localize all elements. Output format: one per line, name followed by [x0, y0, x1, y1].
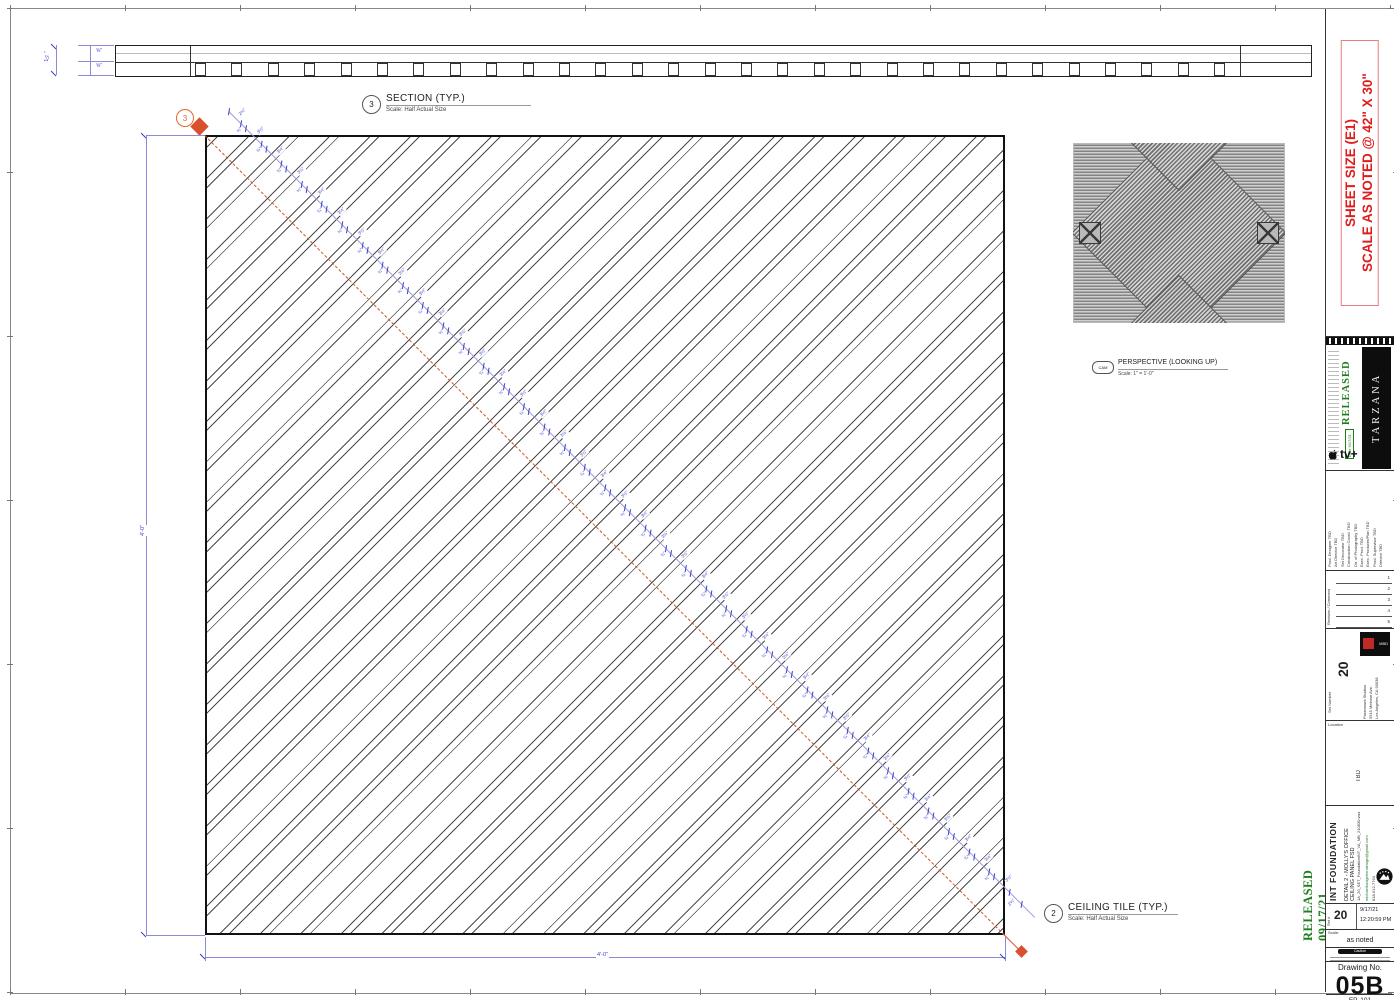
batten [959, 63, 970, 76]
edge-tick [470, 5, 471, 11]
dim-ext [78, 75, 114, 76]
section-strip-divider [190, 46, 191, 76]
batten [523, 63, 534, 76]
designer-logo: MBD [1360, 632, 1390, 656]
batten [632, 63, 643, 76]
x-box-left [1079, 222, 1101, 244]
set-title: INT FOUNDATION [1328, 809, 1338, 901]
dim-ext [1005, 937, 1006, 961]
batten [450, 63, 461, 76]
revision-number: 3 [1387, 597, 1390, 602]
edge-tick [355, 5, 356, 11]
batten [195, 63, 206, 76]
release-cell: RELEASED Date 9/17/21 TARZANA tv+ [1326, 345, 1394, 471]
edge-tick [585, 989, 586, 995]
production-title: TARZANA [1362, 347, 1391, 469]
title-underline [386, 105, 531, 106]
crew-entry: Director TBD [1379, 473, 1383, 567]
revision-number: 5 [1387, 619, 1390, 624]
revision-number: 4 [1387, 608, 1390, 613]
filename: 1A_20_SET_FoundationINT_VA_MB_210830.vwx [1357, 809, 1362, 901]
revision-cell: Revision / Comment 12345 [1326, 571, 1394, 629]
sheet-size-cell: SHEET SIZE (E1) SCALE AS NOTED @ 42" X 3… [1326, 9, 1394, 337]
edge-tick [7, 336, 13, 337]
apple-tv-logo: tv+ [1329, 447, 1358, 461]
dim-ext [146, 935, 205, 936]
batten [413, 63, 424, 76]
batten [996, 63, 1007, 76]
cam-bubble: CAM [1092, 361, 1114, 374]
ceiling-number-bubble: 2 [1044, 904, 1063, 923]
set-date-row: Set # 20 9/17/21 12:20:59 PM [1326, 904, 1394, 930]
edge-tick [7, 8, 13, 9]
edge-tick [930, 989, 931, 995]
dim-ext [78, 61, 114, 62]
film-strip-bar [1326, 337, 1394, 345]
batten [1141, 63, 1152, 76]
title-underline [1068, 914, 1178, 915]
crew-entry: Dir. of Photography TBD [1354, 473, 1358, 567]
revision-number: 1 [1387, 575, 1390, 580]
batten [595, 63, 606, 76]
contact-phone: 818-612-7764 [1372, 826, 1377, 901]
strip-dim-line [56, 45, 57, 75]
caution-fine-print [1330, 956, 1390, 961]
edge-tick [1160, 5, 1161, 11]
edge-tick [815, 5, 816, 11]
edge-tick [7, 828, 13, 829]
batten [1105, 63, 1116, 76]
crew-entry: Construction Coord. TBD [1347, 473, 1351, 567]
batten [1069, 63, 1080, 76]
section-strip-drawing [115, 45, 1312, 77]
set-number-label: Set Number [1328, 633, 1333, 713]
section-marker-bubble: 3 [176, 109, 194, 127]
dim-ext [78, 45, 114, 46]
ceiling-scale: Scale: Half Actual Size [1068, 916, 1128, 922]
revision-header: Revision / Comment [1327, 575, 1332, 625]
dim-ext [205, 937, 206, 961]
divider [1356, 904, 1357, 930]
designer-logo-text: MBD [1379, 641, 1388, 646]
sheet-size-line1: SHEET SIZE (E1) [1343, 118, 1358, 226]
edge-tick [470, 989, 471, 995]
strip-thickness-dim: 1¼" [44, 51, 51, 62]
drawing-no-cell: Drawing No. 05B [1326, 962, 1394, 995]
edge-tick [1275, 5, 1276, 11]
batten [1214, 63, 1225, 76]
section-number-bubble: 3 [362, 95, 381, 114]
edge-tick [355, 989, 356, 995]
revision-row: 5 [1336, 617, 1392, 628]
revision-row: 4 [1336, 606, 1392, 617]
batten [377, 63, 388, 76]
batten [304, 63, 315, 76]
revision-number: 2 [1387, 586, 1390, 591]
scale-label: Scale: [1328, 931, 1339, 936]
location-cell: Location TBD [1326, 721, 1394, 806]
batten [887, 63, 898, 76]
title-underline [1118, 369, 1228, 370]
batten [486, 63, 497, 76]
caution-row: Caution [1326, 948, 1394, 962]
section-scale: Scale: Half Actual Size [386, 107, 446, 113]
edge-tick [125, 989, 126, 995]
edge-tick [700, 989, 701, 995]
sheet-size-line2: SCALE AS NOTED @ 42" X 30" [1360, 73, 1375, 272]
set-number-cell: Set Number 20 MBD Paramount Studios 5515… [1326, 629, 1394, 721]
contact-email: michaelbudgehendesign@gmail.com [1365, 809, 1370, 901]
edge-tick [1045, 989, 1046, 995]
crew-cell: Prod. Designer TBDArt Director TBDSet De… [1326, 471, 1394, 571]
set-number-value: 20 [1335, 637, 1351, 677]
perspective-scale: Scale: 1" = 1'-0" [1118, 371, 1154, 377]
edge-tick [7, 172, 13, 173]
scale-value: as noted [1326, 937, 1394, 944]
edge-tick [125, 5, 126, 11]
batten [850, 63, 861, 76]
revision-rows: 12345 [1336, 573, 1392, 628]
plan-width-dim: 4'-0" [596, 953, 609, 959]
edge-tick [1160, 989, 1161, 995]
batten [341, 63, 352, 76]
drawing-sheet: 1¼" ⅝" ⅝" 3 SECTION (TYP.) Scale: Half A… [0, 0, 1400, 1000]
batten [814, 63, 825, 76]
date-value: 9/17/21 [1360, 907, 1378, 913]
batten [1032, 63, 1043, 76]
set-hash-value: 20 [1334, 908, 1347, 922]
time-value: 12:20:59 PM [1360, 917, 1391, 923]
crew-entry: Prod. Supervisor TBD [1373, 473, 1377, 567]
edge-tick [240, 5, 241, 11]
paramount-logo [1376, 868, 1393, 885]
strip-sub-dim-top: ⅝" [95, 49, 103, 54]
drawing-no-label: Drawing No. [1326, 963, 1394, 972]
crew-entry: Exec. Prod. TBD [1360, 473, 1364, 567]
edge-tick [700, 5, 701, 11]
revision-row: 3 [1336, 595, 1392, 606]
location-label: Location [1328, 723, 1343, 728]
crew-entry: Art Director TBD [1334, 473, 1338, 567]
batten [559, 63, 570, 76]
sheet-size-note: SHEET SIZE (E1) SCALE AS NOTED @ 42" X 3… [1341, 40, 1379, 306]
set-hash-label: Set # [1327, 906, 1332, 926]
batten [923, 63, 934, 76]
studio-address: Paramount Studios 5515 Melrose Ave. Los … [1362, 661, 1380, 719]
perspective-render-image [1073, 143, 1285, 323]
drawing-title: DETAIL 2 - MOLLY'S OFFICE CEILING PANEL … [1344, 809, 1356, 901]
x-box-right [1257, 222, 1279, 244]
edge-tick [7, 500, 13, 501]
location-value: TBD [1356, 746, 1362, 782]
ceiling-title: CEILING TILE (TYP.) [1068, 902, 1168, 913]
crew-entry: Prod. Designer TBD [1328, 473, 1332, 567]
section-strip-line [116, 53, 1311, 54]
dim-ext [146, 135, 205, 136]
section-strip-divider [1240, 46, 1241, 76]
title-block: SHEET SIZE (E1) SCALE AS NOTED @ 42" X 3… [1325, 9, 1393, 992]
dim-line [90, 45, 91, 75]
designer-logo-square [1363, 638, 1374, 649]
scale-row: Scale: as noted [1326, 930, 1394, 948]
apple-icon [1329, 449, 1338, 460]
edge-tick [930, 5, 931, 11]
batten [231, 63, 242, 76]
edge-tick [1275, 989, 1276, 995]
batten [668, 63, 679, 76]
batten [741, 63, 752, 76]
batten [268, 63, 279, 76]
crew-entry: Set Decorator TBD [1341, 473, 1345, 567]
edge-tick [815, 989, 816, 995]
plan-height-dim: 4'-0" [140, 525, 148, 536]
network-logo-text: tv+ [1340, 447, 1358, 461]
titles-cell: INT FOUNDATION DETAIL 2 - MOLLY'S OFFICE… [1326, 806, 1394, 904]
revision-row: 1 [1336, 573, 1392, 584]
drawing-no-value: 05B [1326, 972, 1394, 995]
batten [1178, 63, 1189, 76]
crew-entry: Exec. Producer/Plan TBD [1366, 473, 1370, 567]
released-label: RELEASED [1341, 353, 1352, 425]
edge-tick [1045, 5, 1046, 11]
edge-tick [240, 989, 241, 995]
episode-cell: EP. 101 [1326, 995, 1394, 1000]
perspective-title: PERSPECTIVE (LOOKING UP) [1118, 359, 1217, 366]
caution-bar: Caution [1338, 949, 1382, 954]
edge-tick [7, 664, 13, 665]
strip-sub-dim-bottom: ⅝" [95, 64, 103, 69]
edge-tick [585, 5, 586, 11]
batten [705, 63, 716, 76]
batten [777, 63, 788, 76]
revision-row: 2 [1336, 584, 1392, 595]
edge-tick [7, 992, 13, 993]
section-title: SECTION (TYP.) [386, 93, 465, 104]
